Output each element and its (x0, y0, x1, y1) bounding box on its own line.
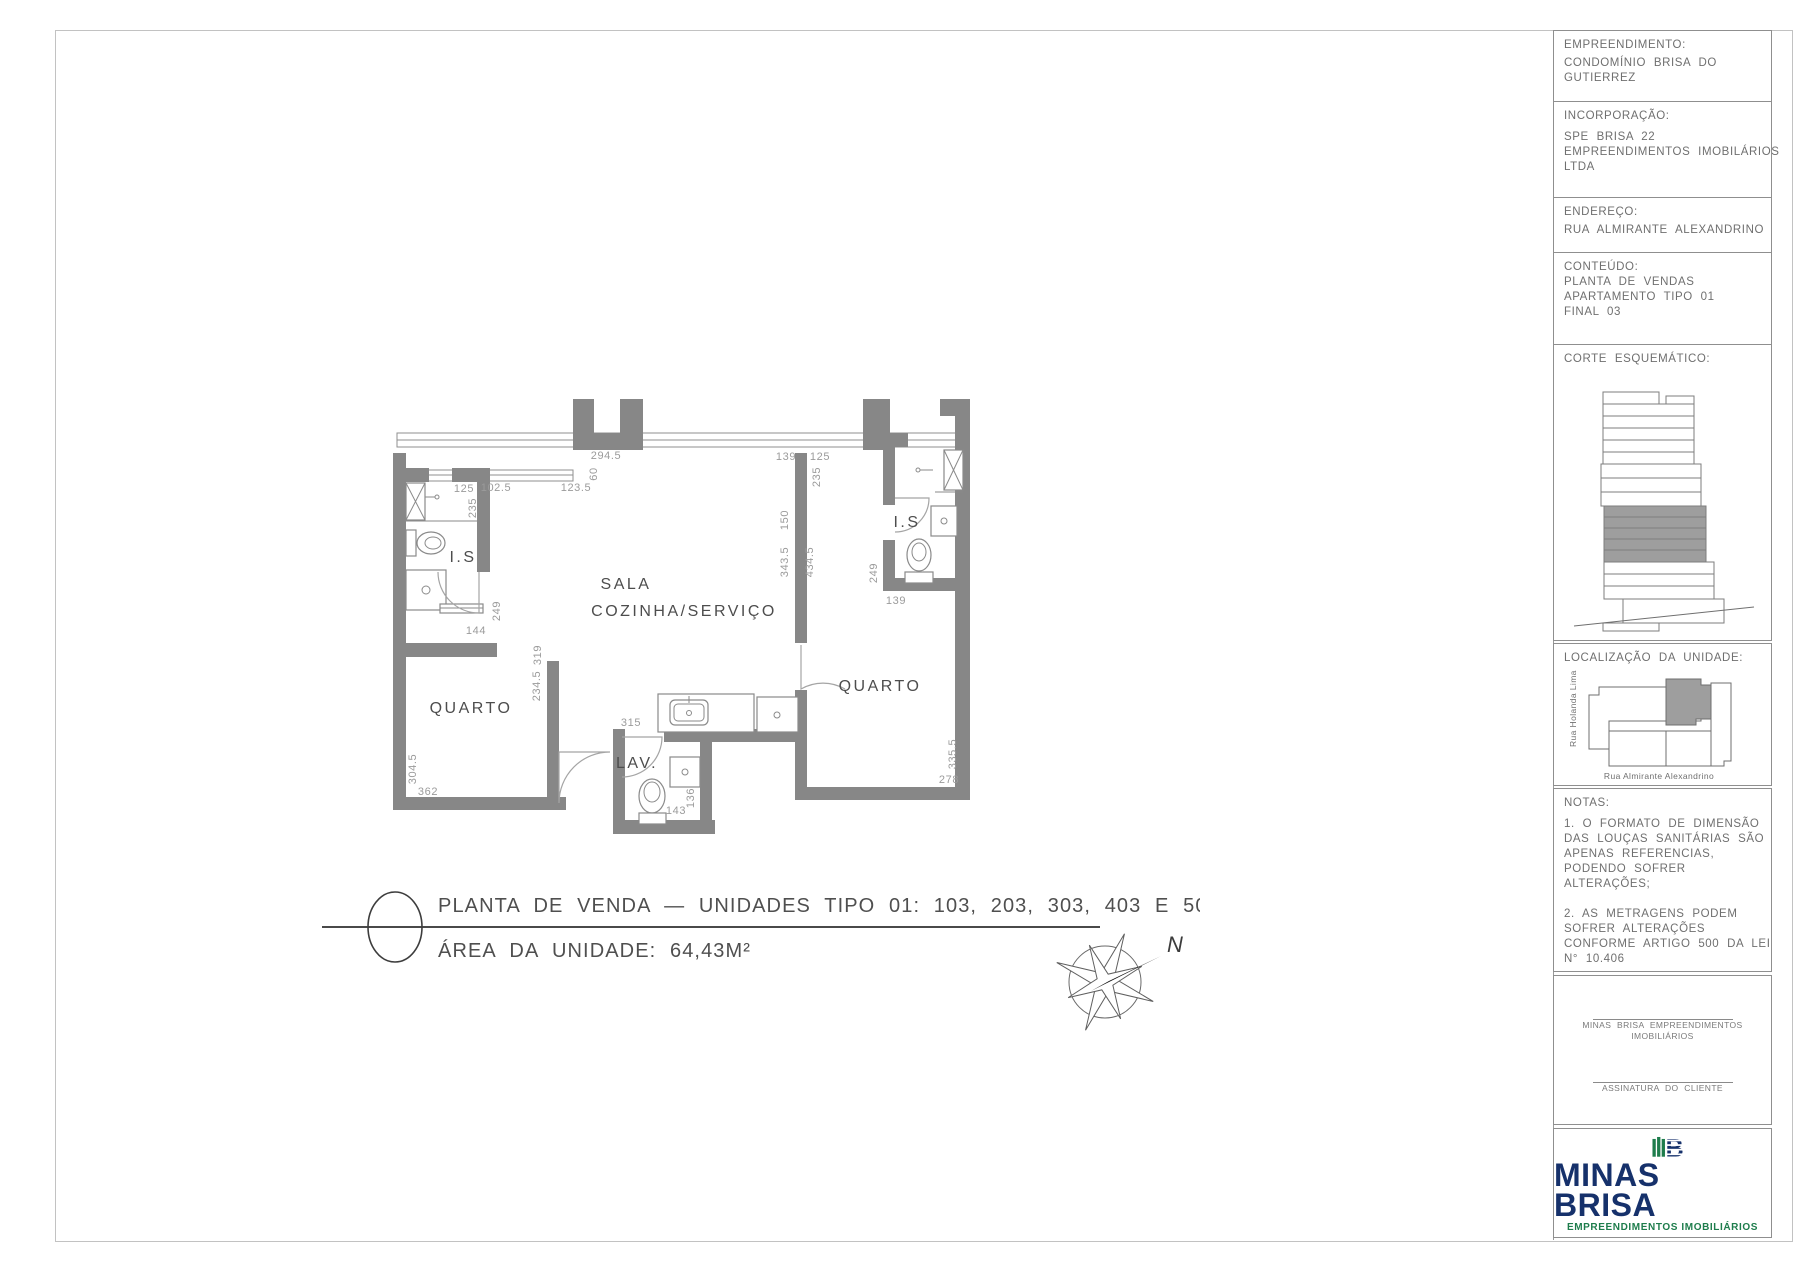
dim-249-right: 249 (868, 563, 880, 583)
section-notas: NOTAS: 1. O FORMATO DE DIMENSÃO DAS LOUÇ… (1553, 788, 1772, 972)
section-line: RUA ALMIRANTE ALEXANDRINO (1564, 223, 1761, 238)
room-label-quarto-right: QUARTO (839, 678, 922, 695)
logo-name: MINAS BRISA (1554, 1160, 1771, 1220)
section-line: APARTAMENTO TIPO 01 (1564, 290, 1761, 305)
note-line: APENAS REFERENCIAS, (1564, 847, 1761, 862)
building-section-diagram (1564, 370, 1763, 632)
section-line: SPE BRISA 22 (1564, 130, 1761, 145)
dim-278: 278 (939, 774, 959, 786)
hall-shelf (440, 604, 483, 613)
section-title: CORTE ESQUEMÁTICO: (1564, 352, 1761, 367)
note-line: SOFRER ALTERAÇÕES (1564, 922, 1761, 937)
section-line: LTDA (1564, 160, 1761, 175)
dim-139-bottom: 139 (886, 595, 906, 607)
section-localizacao: LOCALIZAÇÃO DA UNIDADE: Rua Holanda Lima… (1553, 643, 1772, 786)
dim-335-5: 335.5 (947, 739, 959, 770)
logo-letter: B (1665, 1135, 1683, 1160)
corte-floors (1574, 392, 1754, 631)
dim-294-5: 294.5 (591, 450, 622, 462)
dim-343-5: 343.5 (779, 547, 791, 578)
note-line: ALTERAÇÕES; (1564, 877, 1761, 892)
dim-102-5: 102.5 (481, 482, 512, 494)
dim-139-top: 139 (776, 451, 796, 463)
compass-north-label: N (1167, 932, 1183, 957)
dim-319: 319 (532, 645, 544, 665)
note-line: N° 10.406 (1564, 952, 1761, 967)
company-signature-label2: IMOBILIÁRIOS (1554, 1031, 1771, 1042)
dim-125-left: 125 (454, 483, 474, 495)
street-label-left: Rua Holanda Lima (1568, 670, 1578, 747)
dim-304-5: 304.5 (407, 754, 419, 785)
section-line: CONDOMÍNIO BRISA DO (1564, 56, 1761, 71)
dim-234-5: 234.5 (531, 671, 543, 702)
street-label-bottom: Rua Almirante Alexandrino (1604, 771, 1714, 781)
dim-249-left: 249 (491, 601, 503, 621)
room-label-cozinha: COZINHA/SERVIÇO (591, 603, 777, 620)
section-empreendimento: EMPREENDIMENTO: CONDOMÍNIO BRISA DO GUTI… (1553, 30, 1772, 102)
dim-362: 362 (418, 786, 438, 798)
dim-60: 60 (588, 467, 600, 480)
section-line: EMPREENDIMENTOS IMOBILÁRIOS (1564, 145, 1761, 160)
section-assinatura: MINAS BRISA EMPREENDIMENTOS IMOBILIÁRIOS… (1553, 975, 1772, 1125)
dim-136: 136 (685, 788, 697, 808)
dim-235-left: 235 (467, 498, 479, 518)
note-line: 2. AS METRAGENS PODEM (1564, 907, 1761, 922)
note-line: PODENDO SOFRER (1564, 862, 1761, 877)
section-title: EMPREENDIMENTO: (1564, 38, 1761, 53)
section-endereco: ENDEREÇO: RUA ALMIRANTE ALEXANDRINO (1553, 197, 1772, 253)
logo-tagline: EMPREENDIMENTOS IMOBILIÁRIOS (1567, 1222, 1758, 1233)
section-line: PLANTA DE VENDAS (1564, 275, 1761, 290)
section-title: ENDEREÇO: (1564, 205, 1761, 220)
section-line: FINAL 03 (1564, 305, 1761, 320)
section-title: NOTAS: (1564, 796, 1761, 811)
section-incorporacao: INCORPORAÇÃO: SPE BRISA 22 EMPREENDIMENT… (1553, 101, 1772, 198)
section-title: LOCALIZAÇÃO DA UNIDADE: (1564, 651, 1761, 666)
dim-235-right: 235 (811, 467, 823, 487)
note-line: DAS LOUÇAS SANITÁRIAS SÃO (1564, 832, 1761, 847)
room-label-is-right: I.S (893, 514, 920, 531)
client-signature-label: ASSINATURA DO CLIENTE (1554, 1083, 1771, 1094)
kitchen-counter (658, 694, 798, 732)
section-line: GUTIERREZ (1564, 71, 1761, 86)
dim-315: 315 (621, 717, 641, 729)
room-label-quarto-left: QUARTO (430, 700, 513, 717)
logo-bars (1652, 1137, 1665, 1157)
dim-150: 150 (779, 510, 791, 530)
section-conteudo: CONTEÚDO: PLANTA DE VENDAS APARTAMENTO T… (1553, 252, 1772, 345)
note-line: 1. O FORMATO DE DIMENSÃO (1564, 817, 1761, 832)
room-label-sala: SALA (601, 576, 652, 593)
unit-location-map: Rua Holanda Lima Rua Almirante Alexandri… (1564, 669, 1763, 781)
section-corte: CORTE ESQUEMÁTICO: (1553, 344, 1772, 641)
plan-title-line1: PLANTA DE VENDA — UNIDADES TIPO 01: 103,… (438, 895, 1200, 917)
company-signature-label: MINAS BRISA EMPREENDIMENTOS (1554, 1020, 1771, 1031)
drawing-title: PLANTA DE VENDA — UNIDADES TIPO 01: 103,… (322, 892, 1200, 962)
room-label-lav: LAV. (616, 755, 658, 772)
dim-123-5: 123.5 (561, 482, 592, 494)
company-logo: B MINAS BRISA EMPREENDIMENTOS IMOBILIÁRI… (1553, 1128, 1772, 1238)
compass-icon: N (1037, 914, 1183, 1040)
room-label-is-left: I.S (449, 549, 476, 566)
dim-144: 144 (466, 625, 486, 637)
site-plan-shapes (1589, 679, 1731, 766)
floor-plan-drawing: I.S SALA COZINHA/SERVIÇO QUARTO QUARTO L… (300, 380, 1200, 1040)
logo-letter-b: B (1664, 1135, 1683, 1160)
dim-143: 143 (666, 805, 686, 817)
plan-title-line2: ÁREA DA UNIDADE: 64,43M² (438, 939, 751, 962)
dim-434-5: 434.5 (804, 547, 816, 578)
note-line: CONFORME ARTIGO 500 DA LEI (1564, 937, 1761, 952)
section-title: INCORPORAÇÃO: (1564, 109, 1761, 124)
dim-125-right: 125 (810, 451, 830, 463)
section-title: CONTEÚDO: (1564, 260, 1761, 275)
